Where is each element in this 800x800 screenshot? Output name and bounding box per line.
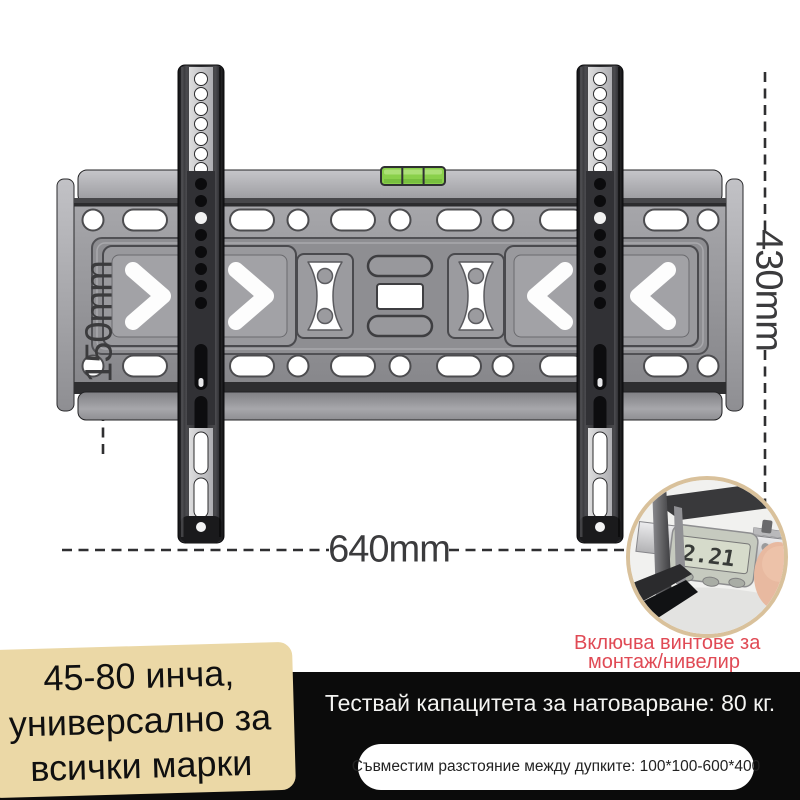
bubble-level <box>381 167 445 185</box>
dimension-label-height-left: 150mm <box>79 261 122 383</box>
dimension-label-height-right: 430mm <box>747 229 790 351</box>
center-slot-group <box>368 256 432 336</box>
right-rail <box>577 65 623 543</box>
size-range-badge: 45-80 инча, универсално за всички марки <box>0 642 296 799</box>
size-range-line2: универсално за <box>8 694 271 746</box>
wall-plate <box>57 170 743 420</box>
included-screws-note-line2: монтаж/нивелир <box>574 653 754 672</box>
included-screws-note: Включва винтове за монтаж/нивелир <box>574 634 754 672</box>
size-range-line1: 45-80 инча, <box>43 650 235 700</box>
vesa-compatibility-pill: Съвместим разстояние между дупките: 100*… <box>358 744 754 790</box>
caliper-photo-inset: 2.21 <box>626 476 788 638</box>
dimension-label-width-bottom: 640mm <box>328 529 450 572</box>
load-capacity-text: Тествай капацитета за натоварване: 80 кг… <box>305 690 795 717</box>
caliper-illustration: 2.21 <box>630 480 784 634</box>
product-image: 150mm 430mm 640mm 2.21 <box>0 0 800 800</box>
size-range-line3: всички марки <box>30 739 253 790</box>
left-rail <box>178 65 224 543</box>
vesa-compatibility-text: Съвместим разстояние между дупките: 100*… <box>352 758 761 776</box>
